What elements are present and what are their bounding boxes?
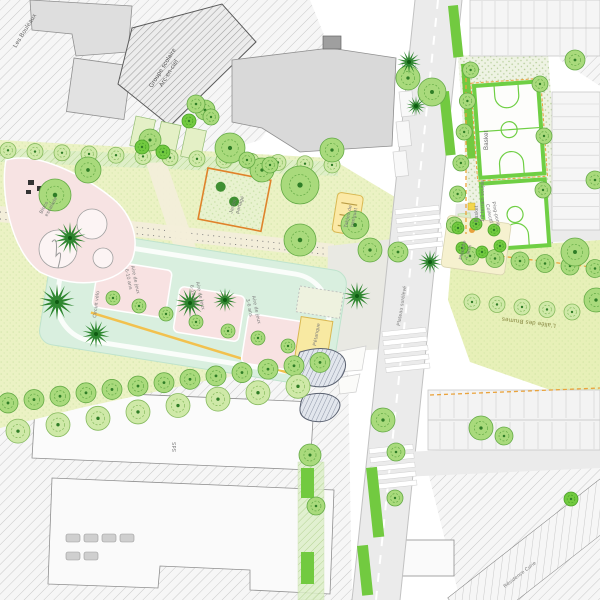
tree-center [227,330,229,332]
tree-icon [450,186,466,202]
tree-icon [182,114,196,128]
tree-icon [469,416,493,440]
tree-icon [50,386,70,406]
tree-icon [46,413,70,437]
tree-icon [75,157,101,183]
tree-icon [232,363,252,383]
tree-center [136,410,139,413]
tree-center [142,155,144,157]
tree-center [138,305,140,307]
tree-center [319,361,322,364]
tree-icon [54,145,70,161]
palm-center [428,260,432,264]
tree-icon [535,182,551,198]
tree-center [406,76,409,79]
tree-icon [561,238,589,266]
tree-center [163,381,166,384]
tree-center [381,418,384,421]
tree-center [210,116,212,118]
tree-center [479,426,482,429]
tree-icon [281,166,319,204]
tree-center [571,311,573,313]
tree-icon [536,128,552,144]
tree-center [241,371,244,374]
tree-canopy [586,171,600,189]
tree-icon [206,366,226,386]
tree-icon [494,240,506,252]
tree-center [570,498,572,500]
car-icon [84,534,98,542]
climbing-block [77,209,107,239]
tree-icon [106,291,120,305]
tree-icon [128,376,148,396]
tree-icon [489,297,505,313]
tree-icon [6,419,30,443]
tree-center [466,100,468,102]
tree-center [86,168,90,172]
tree-center [330,148,333,151]
tree-center [539,83,541,85]
tree-icon [299,444,321,466]
tree-center [137,385,140,388]
tree-icon [358,238,382,262]
site-plan-canvas: Les Bouleaux Groupe scolaire Arc-en-ciel… [0,0,600,600]
tree-center [7,402,10,405]
palm-center [414,104,418,108]
tree-center [267,368,270,371]
palm-center [55,300,59,304]
tree-center [176,404,179,407]
tree-center [499,245,501,247]
parking-stall [396,121,412,147]
tree-icon [156,145,170,159]
building-annex [323,36,341,49]
tree-center [471,301,473,303]
parking-lot-right [552,92,600,230]
tree-center [215,375,218,378]
tree-center [257,337,259,339]
tree-center [475,223,477,225]
tree-center [196,158,198,160]
tree-center [308,453,311,456]
tree-center [34,150,36,152]
tree-icon [284,224,316,256]
tree-icon [86,406,110,430]
tree-center [228,146,232,150]
tree-icon [539,302,555,318]
palm-center [223,298,227,302]
tree-icon [203,109,219,125]
palm-center [94,332,98,336]
tree-center [397,251,400,254]
tree-center [315,505,318,508]
tree-icon [456,124,472,140]
tree-icon [565,50,585,70]
tree-icon [206,387,230,411]
tree-icon [0,393,18,413]
tree-center [469,69,471,71]
tree-center [368,248,371,251]
tree-icon [536,255,554,273]
tree-icon [180,369,200,389]
tree-center [493,229,495,231]
tree-icon [154,373,174,393]
tree-center [456,193,458,195]
tree-center [394,497,396,499]
tree-icon [27,144,43,160]
green-path-segment [301,552,314,584]
tree-center [574,59,577,62]
site-plan-map: Les Bouleaux Groupe scolaire Arc-en-ciel… [0,0,600,600]
tree-center [543,135,545,137]
tree-center [141,146,143,148]
tree-center [573,250,577,254]
tree-icon [463,62,479,78]
tree-center [216,397,219,400]
tree-center [7,149,9,151]
tree-center [256,391,259,394]
tree-center [297,182,302,187]
tree-icon [221,324,235,338]
tree-center [296,385,299,388]
tree-center [88,153,90,155]
label-basket: Basket [484,130,490,150]
tree-icon [166,394,190,418]
tree-center [496,303,498,305]
tree-center [594,179,597,182]
tree-icon [387,443,405,461]
tree-center [503,435,506,438]
tree-center [304,163,306,165]
tree-icon [511,252,529,270]
tree-icon [564,304,580,320]
tree-center [169,156,171,158]
tree-center [395,451,398,454]
tree-center [430,90,434,94]
tree-center [481,251,483,253]
tree-center [115,154,117,156]
tree-icon [320,138,344,162]
tree-center [162,151,164,153]
tree-center [96,417,99,420]
tree-center [546,308,548,310]
tree-center [112,297,114,299]
tree-center [148,138,151,141]
tree-center [33,398,36,401]
tree-icon [0,142,16,158]
tree-icon [76,383,96,403]
green-path-segment [301,468,314,498]
tree-center [544,262,547,265]
tree-icon [564,492,578,506]
tree-center [16,429,19,432]
tree-center [188,120,190,122]
tree-icon [102,379,122,399]
tree-center [460,162,462,164]
tree-icon [281,339,295,353]
tree-icon [246,381,270,405]
tree-icon [187,95,205,113]
tree-center [195,321,197,323]
svg-text:1/2 terrain souple: 1/2 terrain souple [480,180,486,222]
tree-center [165,313,167,315]
car-icon [66,534,80,542]
tree-icon [532,76,548,92]
tree-icon [189,315,203,329]
parking-stall [399,91,415,117]
tree-center [521,306,523,308]
tree-icon [189,151,205,167]
tree-canopy [586,260,600,278]
tree-icon [132,299,146,313]
tree-center [85,391,88,394]
tree-center [542,189,544,191]
car-icon [120,534,134,542]
tree-center [594,267,597,270]
tree-icon [307,497,325,515]
tree-icon [284,356,304,376]
tree-icon [459,93,475,109]
tree-icon [286,374,310,398]
tree-center [195,103,198,106]
tree-icon [418,78,446,106]
label-sds: SdS [172,441,178,452]
tree-center [331,164,333,166]
tree-icon [388,242,408,262]
tree-center [293,364,296,367]
tree-icon [464,294,480,310]
tree-center [287,345,289,347]
tree-center [246,159,248,161]
car-icon [66,552,80,560]
palm-center [68,236,72,240]
tree-icon [135,140,149,154]
tree-center [594,298,597,301]
tree-center [61,152,63,154]
tree-icon [476,246,488,258]
tree-icon [495,427,513,445]
tree-center [463,131,465,133]
tree-icon [108,147,124,163]
tree-center [457,227,459,229]
tree-icon [251,331,265,345]
tree-icon [453,155,469,171]
climbing-block [93,248,113,268]
tree-center [298,238,302,242]
palm-center [407,60,411,64]
palm-center [355,294,359,298]
tree-center [59,395,62,398]
tree-icon [310,352,330,372]
tree-icon [262,157,278,173]
tree-icon [371,408,395,432]
tree-icon [396,66,420,90]
parking-stall [393,151,409,177]
tree-center [56,423,59,426]
car-icon [84,552,98,560]
tree-icon [24,390,44,410]
tree-icon [258,359,278,379]
tree-icon [239,152,255,168]
tree-icon [586,171,600,189]
tree-icon [387,490,403,506]
tree-center [269,164,271,166]
tree-center [189,378,192,381]
tree-center [111,388,114,391]
tree-center [519,260,522,263]
tree-icon [586,260,600,278]
car-icon [102,534,116,542]
tree-icon [159,307,173,321]
palm-center [188,301,192,305]
tree-center [494,257,497,260]
tree-icon [514,299,530,315]
tree-icon [452,222,464,234]
tree-icon [126,400,150,424]
